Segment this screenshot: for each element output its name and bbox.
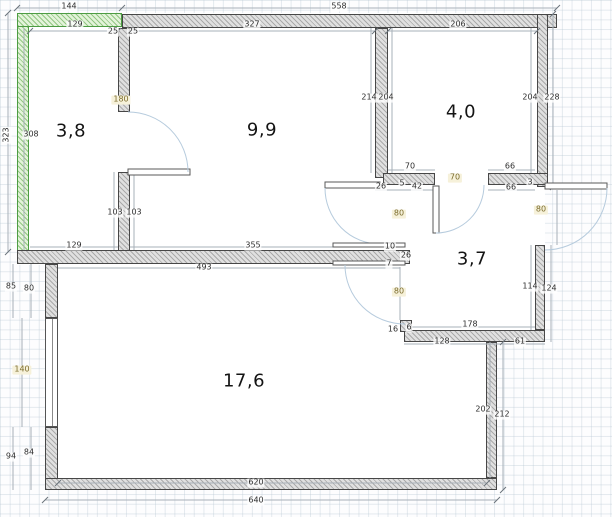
dimension-ticks bbox=[5, 5, 560, 503]
door-9-9-to-3-7[interactable] bbox=[325, 182, 380, 244]
door-3-7-to-17-6[interactable] bbox=[333, 243, 405, 324]
dimension-lines bbox=[8, 8, 557, 500]
entrance-door[interactable] bbox=[545, 183, 607, 250]
floor-plan-canvas: 1445581293272062525323308214204204228706… bbox=[0, 0, 612, 517]
plan-linework bbox=[0, 0, 612, 517]
door-3-8-to-9-9[interactable] bbox=[128, 112, 190, 175]
door-4-0-to-3-7[interactable] bbox=[433, 185, 484, 233]
